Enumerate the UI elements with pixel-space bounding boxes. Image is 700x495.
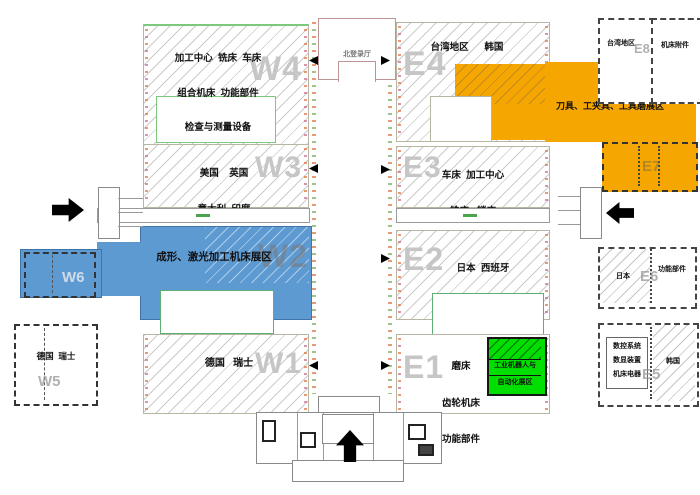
hall-e5-label: E5 [642, 367, 660, 382]
hall-w5: 德国 瑞士 W5 [14, 324, 98, 406]
hall-e5-text-line: 数显装置 [613, 357, 641, 364]
north-hall-notch [338, 61, 376, 82]
hall-w5-text: 德国 瑞士 [20, 352, 92, 361]
divider [638, 146, 640, 186]
hall-e8-label: E8 [634, 42, 650, 55]
exhibition-floor-plan: W4 加工中心 铣床 车床 组合机床 功能部件 检查与测量设备 超硬材料及磨料磨… [0, 0, 700, 495]
hall-w1: W1 德国 瑞士 [143, 334, 309, 414]
bridge-line [118, 212, 143, 213]
hall-w6-label: W6 [62, 270, 85, 285]
corridor-booths [312, 22, 316, 394]
hall-e2-text-line: 日本 西班牙 [433, 264, 533, 274]
hall-e7: E7 [602, 142, 698, 192]
hall-e8: 台湾地区 [598, 18, 655, 104]
east-entrance-arrow-icon [606, 202, 634, 224]
north-registration-hall: 北登录厅 [318, 18, 396, 80]
hall-w6: W6 [24, 252, 96, 298]
hall-e6-label: E6 [640, 269, 658, 284]
hall-e6-left-text: 日本 [616, 273, 630, 280]
hall-w4-text-line: 加工中心 铣床 车床 [148, 54, 288, 64]
hall-e3-text-line: 车床 加工中心 [425, 171, 521, 181]
facility-block [408, 424, 426, 440]
bridge-line [118, 226, 143, 227]
bridge-line [558, 196, 580, 197]
east-entrance [580, 187, 602, 239]
hall-e5: 数控系统 数显装置 机床电器 韩国 E5 [598, 323, 699, 407]
north-hall-name: 北登录厅 [319, 51, 395, 58]
inner-wall [297, 413, 298, 463]
corridor-mark [196, 214, 210, 217]
hall-e5-text-line: 机床电器 [613, 371, 641, 378]
hall-e1-text-line: 齿轮机床 [423, 399, 499, 409]
divider [650, 327, 652, 399]
hall-e5-text-line: 数控系统 [613, 343, 641, 350]
hall-e7-label: E7 [642, 159, 660, 174]
machine-accessory-box: 机床附件 [651, 18, 700, 104]
hall-e6: 日本 E6 功能部件 [598, 247, 697, 309]
hatch-overlay [489, 339, 541, 360]
hall-w1-text: 德国 瑞士 [174, 359, 284, 369]
hall-e5-right-text: 韩国 [666, 358, 680, 365]
hall-w4: W4 加工中心 铣床 车床 组合机床 功能部件 检查与测量设备 超硬材料及磨料磨… [143, 24, 309, 145]
hall-w3-text-line: 美国 英国 [172, 169, 276, 179]
west-entrance [98, 187, 120, 239]
facility-block [418, 444, 434, 456]
east-link-corridor [396, 208, 550, 223]
hall-w2-inner-room [160, 290, 274, 334]
bridge-line [118, 198, 143, 199]
robot-zone-text-line: 工业机器人与 [489, 362, 541, 369]
bridge-line [558, 210, 580, 211]
hall-e2-inner-room [432, 293, 544, 337]
facility-block [262, 420, 276, 442]
facility-block [300, 432, 316, 448]
inner-wall [403, 413, 404, 463]
hall-e3: E3 车床 加工中心 铣床 镗床 电加工机床 [396, 146, 550, 208]
hall-e4-inner-room [430, 96, 492, 142]
south-entrance-porch [292, 460, 404, 482]
hall-w5-label: W5 [38, 374, 61, 389]
west-link-corridor [97, 208, 310, 223]
divider [52, 255, 53, 293]
hall-e6-right-text: 功能部件 [658, 266, 686, 273]
hall-e4-text: 台湾地区 韩国 [411, 43, 523, 53]
forming-zone-extension [97, 242, 143, 296]
hall-w4-text-line: 组合机床 功能部件 [148, 89, 288, 99]
robot-zone-text-line: 自动化展区 [489, 375, 541, 386]
hall-w3: W3 美国 英国 意大利 印度 香港地区 [143, 144, 309, 208]
hall-w4-text-line: 检查与测量设备 [148, 123, 288, 133]
west-entrance-arrow-icon [52, 198, 84, 222]
robot-zone: 工业机器人与 自动化展区 [487, 337, 547, 396]
bridge-line [558, 224, 580, 225]
corridor-mark [463, 214, 477, 217]
machine-accessory-text: 机床附件 [661, 42, 689, 49]
forming-zone-text: 成形、激光加工机床展区 [148, 252, 280, 263]
hall-e8-area-text: 台湾地区 [607, 40, 635, 47]
